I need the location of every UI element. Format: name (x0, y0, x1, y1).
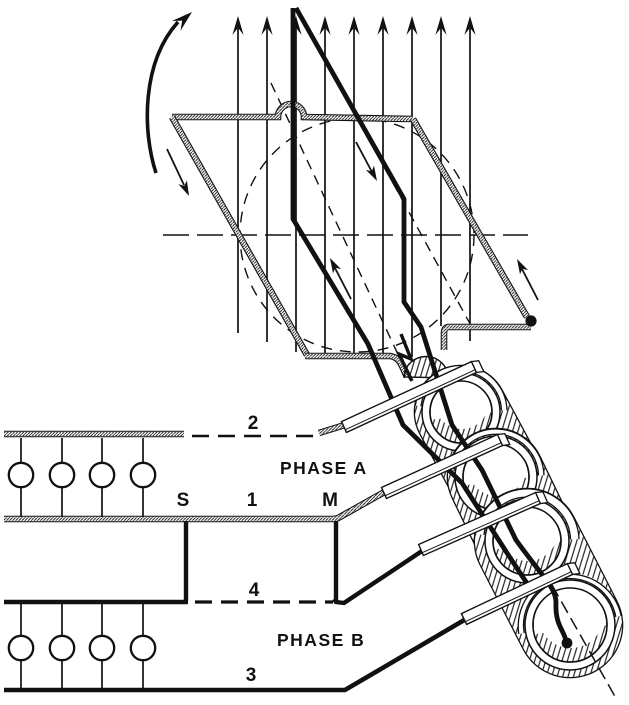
svg-text:2: 2 (248, 413, 259, 434)
svg-text:PHASE A: PHASE A (280, 458, 368, 478)
svg-text:3: 3 (246, 665, 257, 686)
svg-text:M: M (322, 490, 338, 511)
svg-text:S: S (177, 490, 190, 511)
svg-text:PHASE B: PHASE B (277, 630, 365, 650)
svg-text:4: 4 (249, 580, 260, 601)
svg-text:1: 1 (247, 490, 258, 511)
